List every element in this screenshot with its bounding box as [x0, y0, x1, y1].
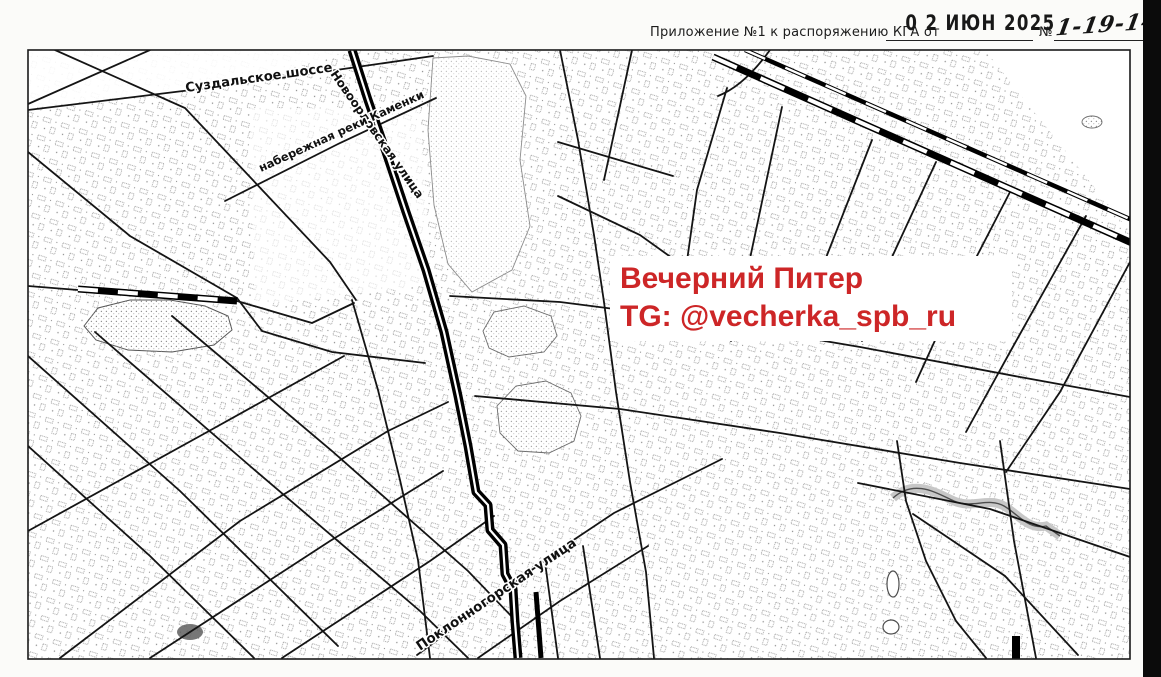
small-pond	[1082, 116, 1102, 128]
watermark-handle: TG: @vecherka_spb_ru	[620, 298, 1012, 336]
scanned-page: Приложение №1 к распоряжению КГА от 0 2 …	[0, 0, 1161, 677]
pond-upper	[483, 306, 557, 357]
scan-edge-strip	[1143, 0, 1161, 677]
watermark-overlay: Вечерний Питер TG: @vecherka_spb_ru	[610, 256, 1012, 341]
watermark-title: Вечерний Питер	[620, 260, 1012, 298]
small-pond	[887, 571, 899, 597]
small-pond	[883, 620, 899, 634]
